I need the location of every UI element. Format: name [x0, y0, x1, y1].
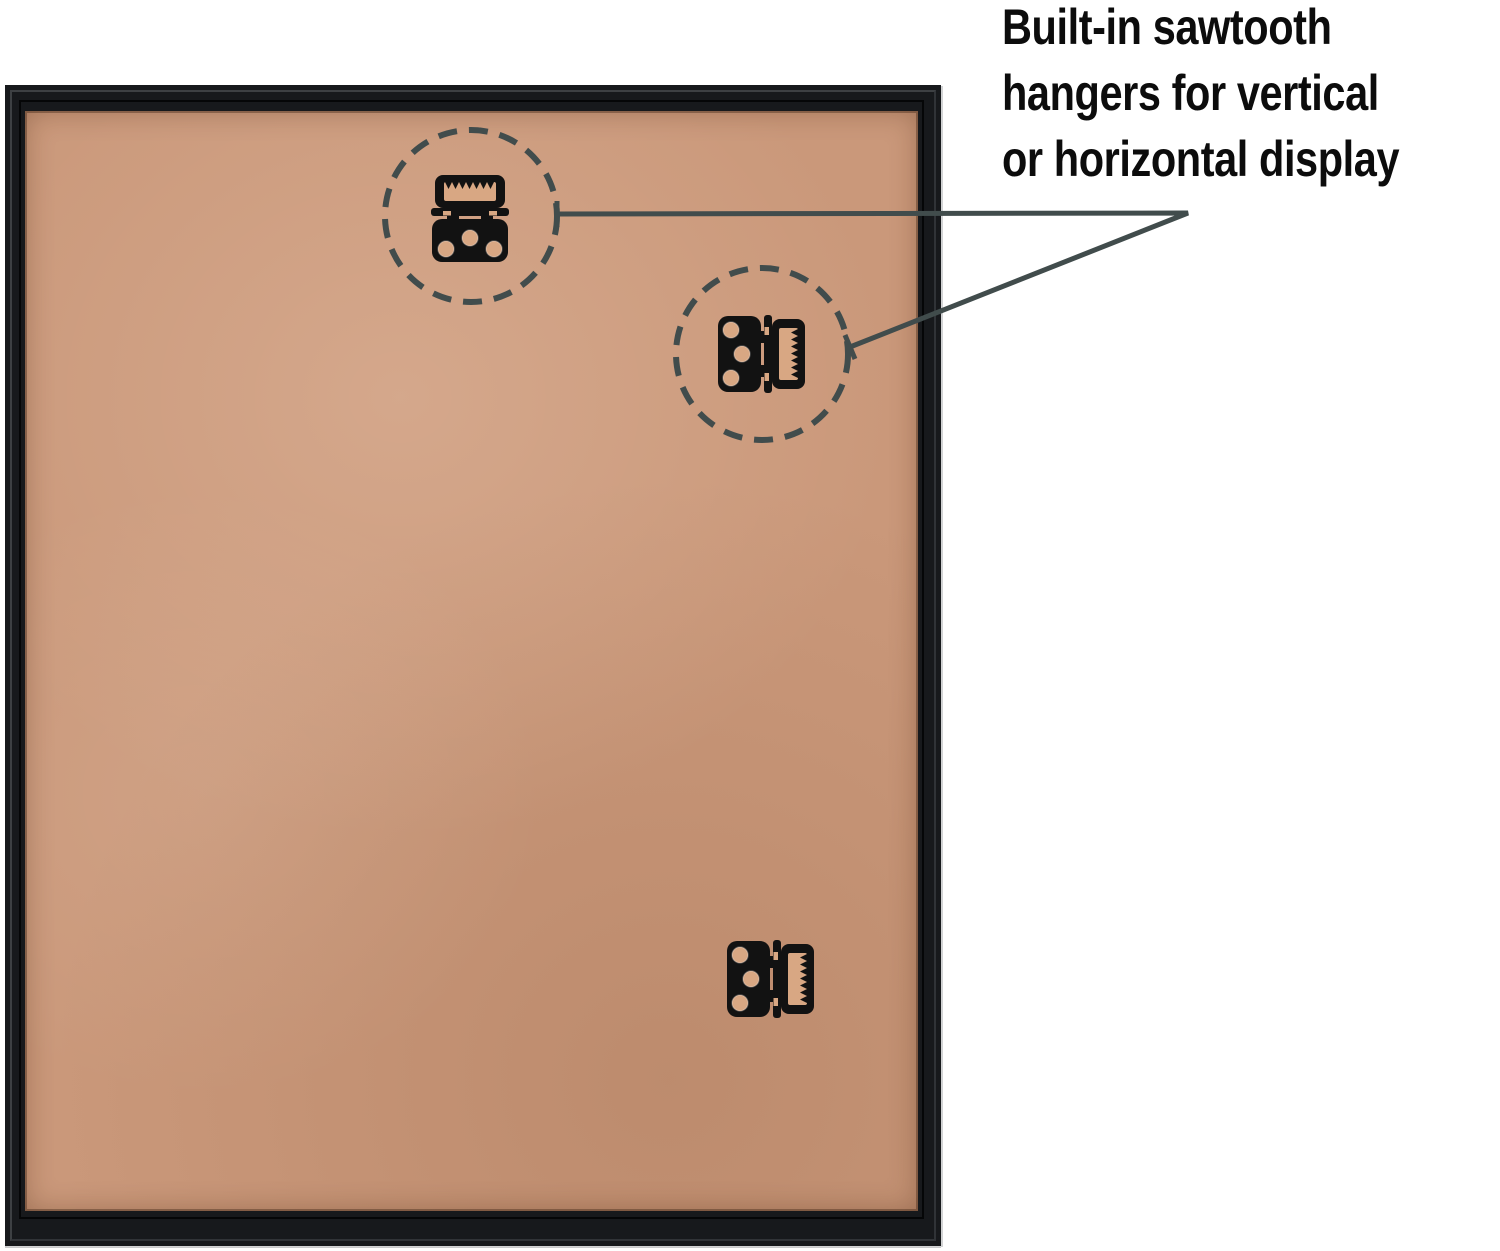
caption-text: Built-in sawtooth hangers for vertical o… [1002, 0, 1500, 192]
product-annotation-image: Built-in sawtooth hangers for vertical o… [0, 0, 1500, 1251]
mdf-backing-board [25, 111, 918, 1211]
picture-frame-back [5, 85, 941, 1246]
